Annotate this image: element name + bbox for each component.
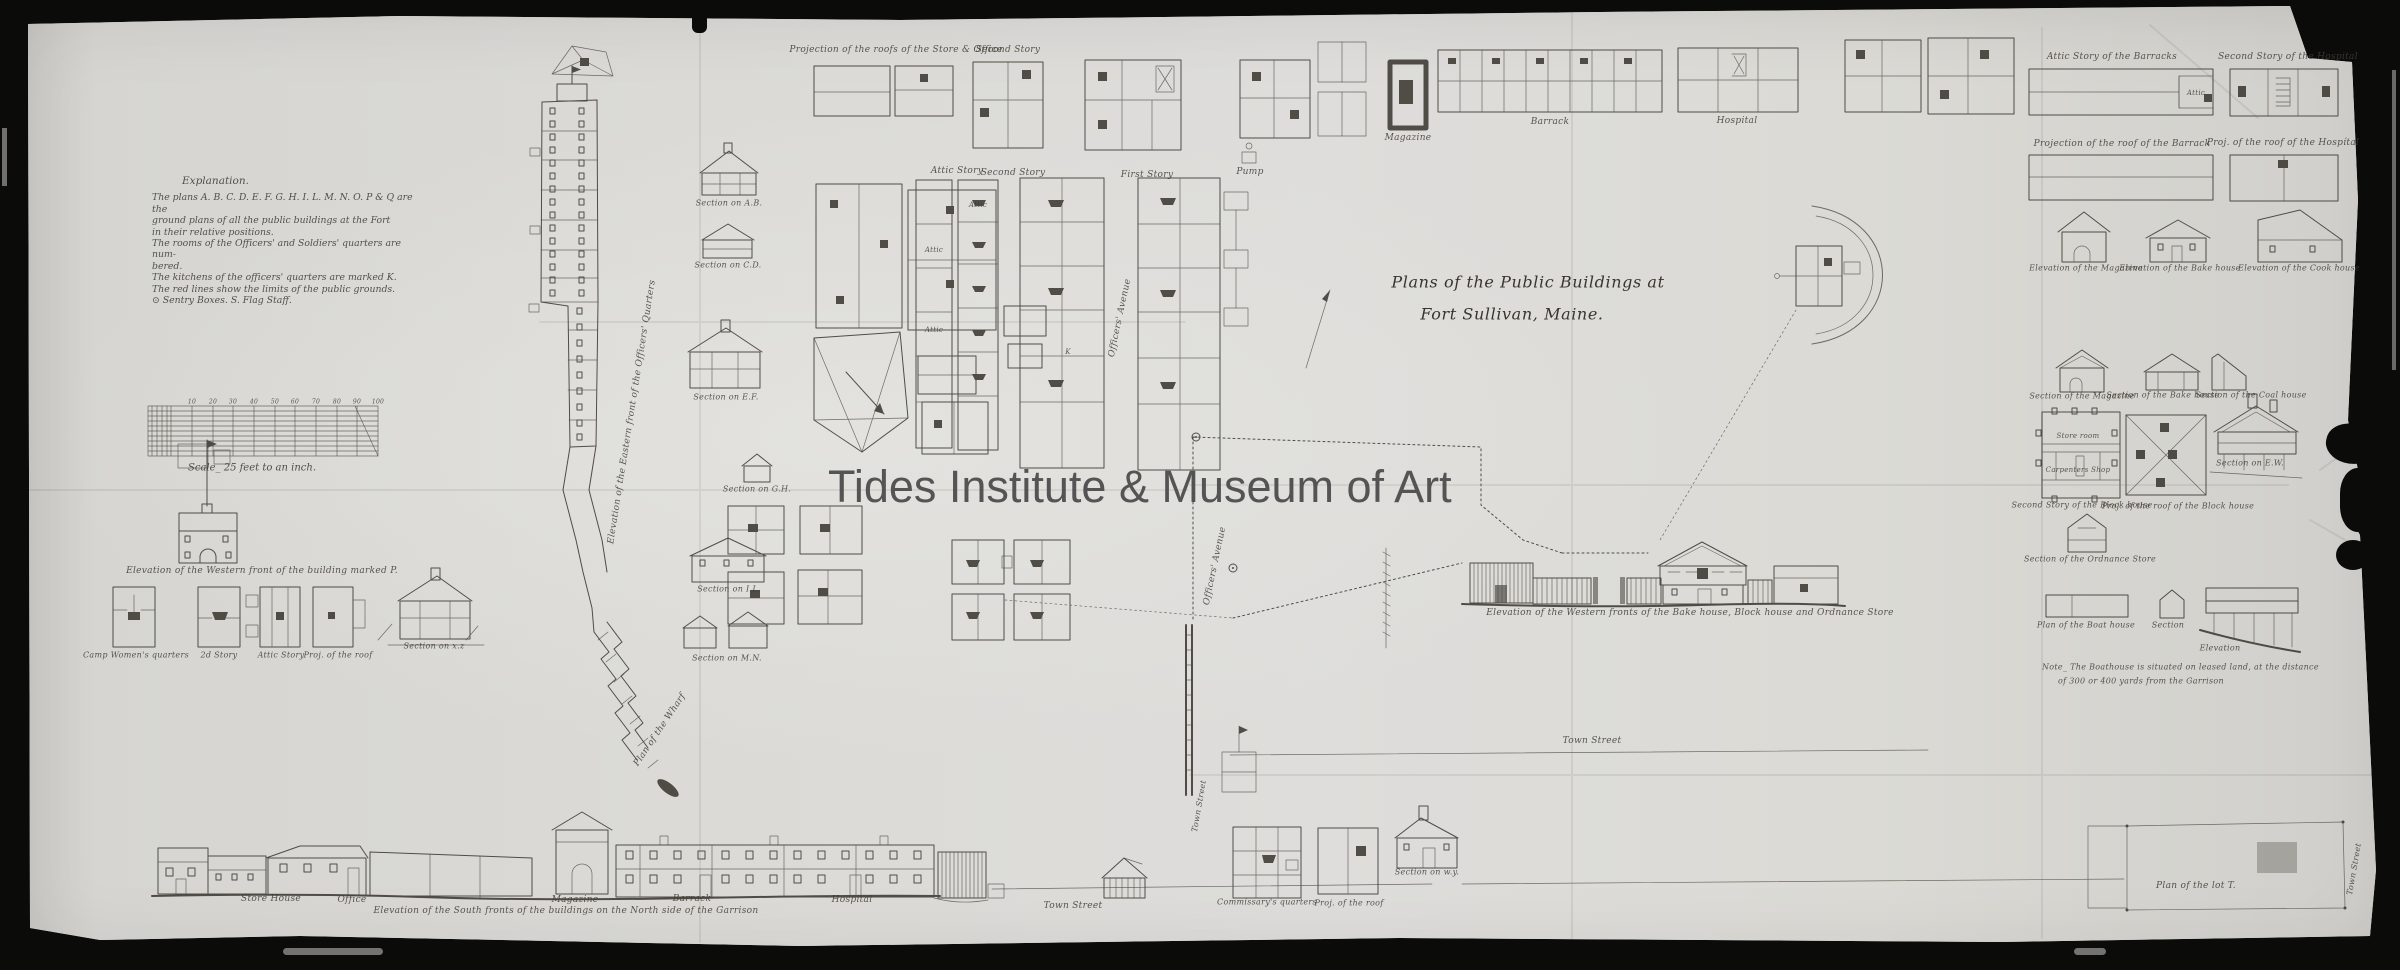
- drawing-label: Store House: [241, 894, 301, 904]
- pump-drawing: [1242, 143, 1256, 163]
- border-speck: [283, 948, 383, 955]
- drawing-title-line2: Fort Sullivan, Maine.: [1420, 305, 1603, 324]
- drawing-label: Carpenters Shop: [2046, 466, 2111, 474]
- drawing-label: Elevation of the South fronts of the bui…: [374, 906, 759, 916]
- drawing-label: 80: [333, 399, 341, 406]
- drawing-label: Section on E.F.: [693, 393, 758, 402]
- second-story-plans-drawing: [1240, 42, 1366, 138]
- drawing-label: Barrack: [1531, 117, 1570, 127]
- drawing-label: Proj. of the roof of the Block house: [2102, 502, 2254, 511]
- drawing-label: Camp Women's quarters: [83, 651, 189, 660]
- officers-story-plans-drawing: [916, 178, 1248, 470]
- drawing-label: Magazine: [1385, 133, 1432, 143]
- explanation-heading: Explanation.: [182, 176, 424, 187]
- explanation-line: The red lines show the limits of the pub…: [152, 284, 424, 295]
- boathouse-plan-drawing: [2046, 595, 2128, 617]
- drawing-label: 50: [271, 399, 279, 406]
- drawing-label: Projection of the roofs of the Store & O…: [789, 45, 1002, 55]
- drawing-label: Hospital: [1717, 116, 1758, 126]
- drawing-label: Section on I.L.: [697, 585, 761, 594]
- paper-edge-sliver: [2392, 70, 2396, 370]
- barrack-roof-projection-drawing: [2029, 155, 2213, 200]
- drawing-label: Section on w.y.: [1395, 868, 1459, 877]
- drawing-label: Town Street: [1044, 901, 1103, 911]
- building-p-elevation-drawing: [179, 504, 237, 563]
- hospital-roof-projection-drawing: [2230, 155, 2338, 201]
- paper-edge-sliver: [2, 128, 7, 186]
- drawing-label: Office: [337, 895, 366, 905]
- small-roof-sketch: [552, 46, 613, 76]
- explanation-lines: The plans A. B. C. D. E. F. G. H. I. L. …: [152, 192, 424, 306]
- drawing-label: Attic: [925, 326, 943, 334]
- scale-bar-drawing: [148, 406, 378, 456]
- drawing-label: Proj. of the roof: [1314, 899, 1383, 908]
- drawing-label: Plan of the lot T.: [2156, 881, 2236, 891]
- drawing-label: First Story: [1121, 170, 1173, 180]
- drawing-label: Attic: [2187, 89, 2205, 97]
- drawing-title-line1: Plans of the Public Buildings at: [1391, 273, 1664, 292]
- mount-tab: [692, 0, 707, 33]
- blockhouse-roof-projection-drawing: [2126, 415, 2206, 495]
- drawing-label: 70: [312, 399, 320, 406]
- drawing-label: Plan of the Boat house: [2037, 621, 2135, 630]
- drawing-label: Attic Story: [258, 651, 305, 660]
- torn-edge-blob: [2336, 540, 2370, 570]
- drawing-label: Section of the Ordnance Store: [2024, 555, 2156, 564]
- drawing-label: Second Story of the Hospital: [2218, 52, 2358, 62]
- drawing-label: Second Story: [976, 45, 1041, 55]
- drawing-label: 90: [353, 399, 361, 406]
- drawing-label: Attic: [969, 201, 987, 209]
- drawing-label: Commissary's quarters: [1217, 898, 1317, 907]
- officers-quarters-building-drawing: [529, 66, 598, 447]
- drawing-label: Store room: [2057, 432, 2100, 440]
- south-elevation-drawing: [152, 812, 1432, 902]
- boathouse-section-drawing: [2160, 590, 2184, 618]
- drawing-label: Section on A.B.: [696, 199, 763, 208]
- drawing-label: Second Story: [981, 168, 1046, 178]
- scale-caption: Scale_ 25 feet to an inch.: [188, 463, 316, 474]
- drawing-label: 30: [229, 399, 237, 406]
- scanned-drawing-stage: Explanation. The plans A. B. C. D. E. F.…: [0, 0, 2400, 970]
- drawing-label: 10: [188, 399, 196, 406]
- drawing-label: Elevation of the Cook house: [2238, 264, 2360, 273]
- explanation-line: bered.: [152, 261, 424, 272]
- drawing-label: Elevation of the Western front of the bu…: [126, 566, 398, 576]
- drawing-label: 40: [250, 399, 258, 406]
- boathouse-elevation-drawing: [2200, 588, 2300, 652]
- drawing-label: 2d Story: [200, 651, 237, 660]
- roof-projection-drawings: [814, 184, 1046, 454]
- explanation-line: ground plans of all the public buildings…: [152, 215, 424, 226]
- drawing-label: Magazine: [552, 895, 599, 905]
- explanation-block: Explanation. The plans A. B. C. D. E. F.…: [152, 176, 424, 306]
- magazine-elevation-drawing: [2058, 212, 2110, 262]
- bakehouse-section-drawing: [2144, 354, 2200, 390]
- drawing-label: Section: [2152, 621, 2185, 630]
- bakehouse-elevation-drawing: [2146, 220, 2210, 262]
- drawing-label: Town Street: [1563, 736, 1622, 746]
- western-elevation-drawing: [1383, 542, 1845, 648]
- barrack-hospital-plans-drawing: [1438, 38, 2014, 114]
- store-office-plans-drawing: [814, 60, 1181, 150]
- drawing-label: Section on x.z: [404, 642, 465, 651]
- blockhouse-plan-drawing: [2036, 408, 2120, 502]
- lot-plan-drawing: [1462, 821, 2347, 912]
- magazine-plan-drawing: [1390, 62, 1426, 128]
- drawing-label: 60: [291, 399, 299, 406]
- drawing-label: Section on C.D.: [694, 261, 761, 270]
- border-speck: [2074, 948, 2106, 955]
- drawing-label: of 300 or 400 yards from the Garrison: [2058, 677, 2224, 686]
- building-p-story-plans-drawing: [113, 587, 365, 647]
- explanation-line: The rooms of the Officers' and Soldiers'…: [152, 238, 424, 261]
- drawing-label: Hospital: [832, 895, 873, 905]
- explanation-line: The kitchens of the officers' quarters a…: [152, 272, 424, 283]
- drawing-label: Barrack: [673, 894, 712, 904]
- explanation-line: in their relative positions.: [152, 227, 424, 238]
- drawing-label: Proj. of the roof: [303, 651, 372, 660]
- drawing-label: K: [1065, 348, 1071, 356]
- drawing-label: Attic Story of the Barracks: [2047, 52, 2177, 62]
- drawing-label: Proj. of the roof of the Hospítal: [2207, 138, 2359, 148]
- drawing-label: Elevation: [2200, 644, 2241, 653]
- coalhouse-section-drawing: [2212, 354, 2246, 390]
- drawing-label: 100: [372, 399, 384, 406]
- museum-watermark: Tides Institute & Museum of Art: [828, 461, 1452, 513]
- ordnance-section-drawing: [2068, 514, 2106, 552]
- drawing-label: 20: [209, 399, 217, 406]
- drawing-label: Section on M.N.: [692, 654, 762, 663]
- drawing-label: Section of the Coal house: [2195, 391, 2306, 400]
- kitchen-plans-drawing: [952, 540, 1070, 640]
- battery-drawing: [1775, 206, 1883, 344]
- drawing-label: Attic: [925, 246, 943, 254]
- drawing-label: Elevation of the Bake house: [2119, 264, 2241, 273]
- magazine-section-drawing: [2056, 350, 2108, 392]
- cookhouse-elevation-drawing: [2258, 210, 2342, 262]
- drawing-label: Section on E.W.: [2216, 459, 2284, 468]
- drawing-label: Note_ The Boathouse is situated on lease…: [2042, 663, 2319, 672]
- drawing-label: Elevation of the Western fronts of the B…: [1486, 608, 1893, 618]
- site-plan-drawing: [1005, 290, 1928, 795]
- drawing-label: Attic Story: [931, 166, 983, 176]
- explanation-line: ⊙ Sentry Boxes. S. Flag Staff.: [152, 295, 424, 306]
- barrack-attic-plan-drawing: [2029, 69, 2213, 115]
- drawing-label: Projection of the roof of the Barrack: [2034, 139, 2211, 149]
- section-xz-drawing: [378, 568, 484, 645]
- explanation-line: The plans A. B. C. D. E. F. G. H. I. L. …: [152, 192, 424, 215]
- torn-edge-blob: [2340, 468, 2384, 532]
- drawing-label: Pump: [1236, 167, 1263, 177]
- drawing-label: Section on G.H.: [723, 485, 791, 494]
